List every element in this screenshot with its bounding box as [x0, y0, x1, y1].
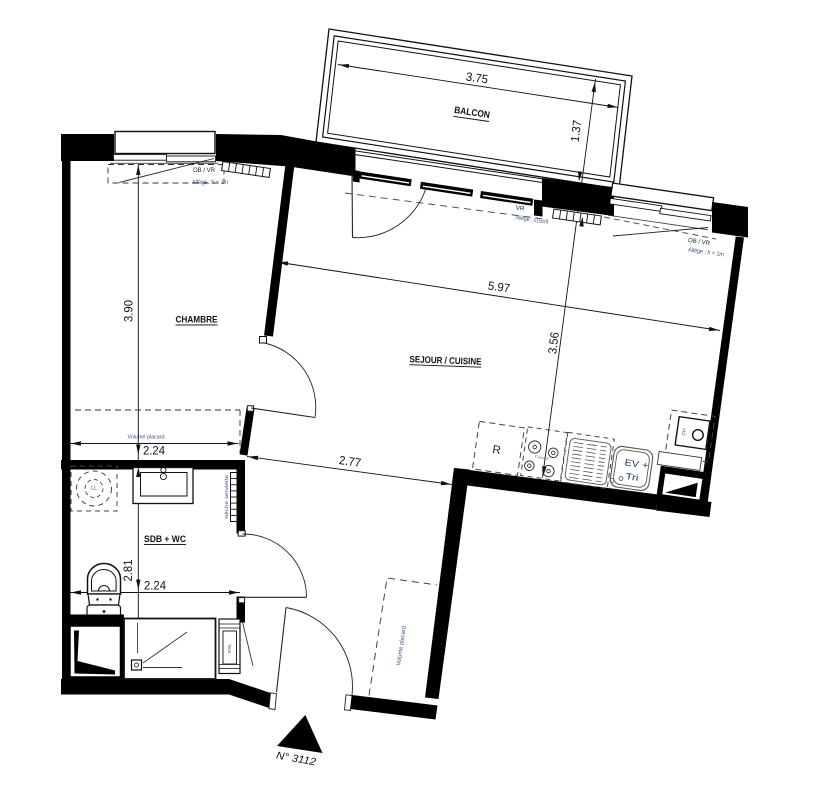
svg-text:CH: CH	[681, 428, 688, 436]
svg-text:VR: VR	[515, 204, 525, 212]
svg-text:2.24: 2.24	[143, 444, 165, 458]
svg-text:Sèche serviette: Sèche serviette	[224, 474, 229, 519]
svg-text:2.81: 2.81	[121, 559, 135, 581]
svg-text:3.90: 3.90	[122, 300, 136, 322]
svg-text:CHAMBRE: CHAMBRE	[176, 315, 218, 325]
svg-text:SDB + WC: SDB + WC	[144, 534, 186, 544]
svg-text:R: R	[492, 444, 502, 457]
svg-text:2.24: 2.24	[144, 579, 166, 593]
svg-text:3.56: 3.56	[545, 331, 562, 355]
svg-text:LL: LL	[91, 486, 97, 492]
svg-text:E'EL: E'EL	[227, 643, 232, 653]
svg-text:Volume placard: Volume placard	[128, 435, 165, 441]
svg-text:OB / VR: OB / VR	[193, 167, 216, 174]
svg-text:Tri: Tri	[625, 471, 639, 483]
svg-text:1.37: 1.37	[568, 119, 585, 143]
svg-text:Allège : h = 1m: Allège : h = 1m	[192, 179, 228, 186]
